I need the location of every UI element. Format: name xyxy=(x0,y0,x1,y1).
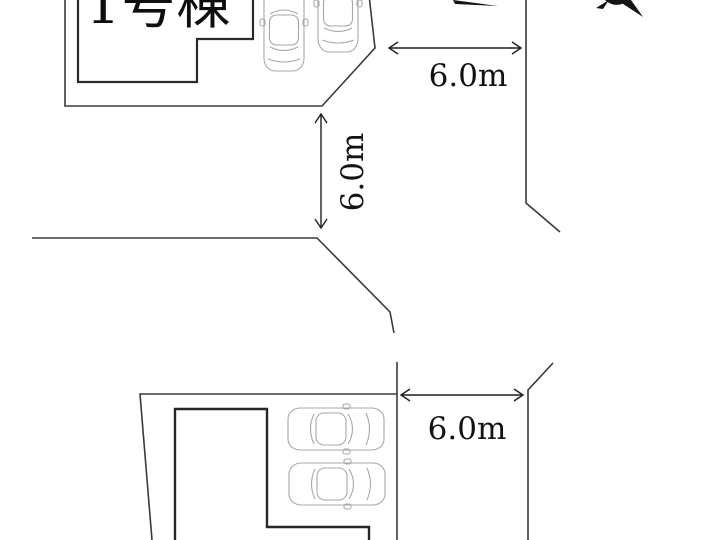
dimension-south-label: 6.0m xyxy=(417,413,517,445)
car-icon xyxy=(289,459,385,509)
building-1-label: 1号棟 xyxy=(86,0,231,33)
car-icon xyxy=(314,0,362,52)
site-plan-linework xyxy=(0,0,720,540)
dimension-north-arrow xyxy=(389,42,521,54)
lot-2-boundary xyxy=(140,394,397,540)
building-2-outline xyxy=(175,409,369,540)
dimension-north-label: 6.0m xyxy=(418,60,518,92)
car-icon xyxy=(288,404,384,454)
site-plan-canvas: 1号棟 6.0m 6.0m 6.0m xyxy=(0,0,720,540)
road-edge-middle xyxy=(32,238,394,333)
car-icon xyxy=(260,0,308,71)
dimension-west-label: 6.0m xyxy=(337,122,369,222)
north-arrow-icon xyxy=(596,0,643,17)
cutoff-symbol-icon xyxy=(453,0,498,6)
dimension-south-arrow xyxy=(401,389,523,401)
road-edge-east-lower xyxy=(528,363,553,540)
dimension-west-arrow xyxy=(315,114,327,228)
road-edge-east-upper xyxy=(526,0,560,232)
